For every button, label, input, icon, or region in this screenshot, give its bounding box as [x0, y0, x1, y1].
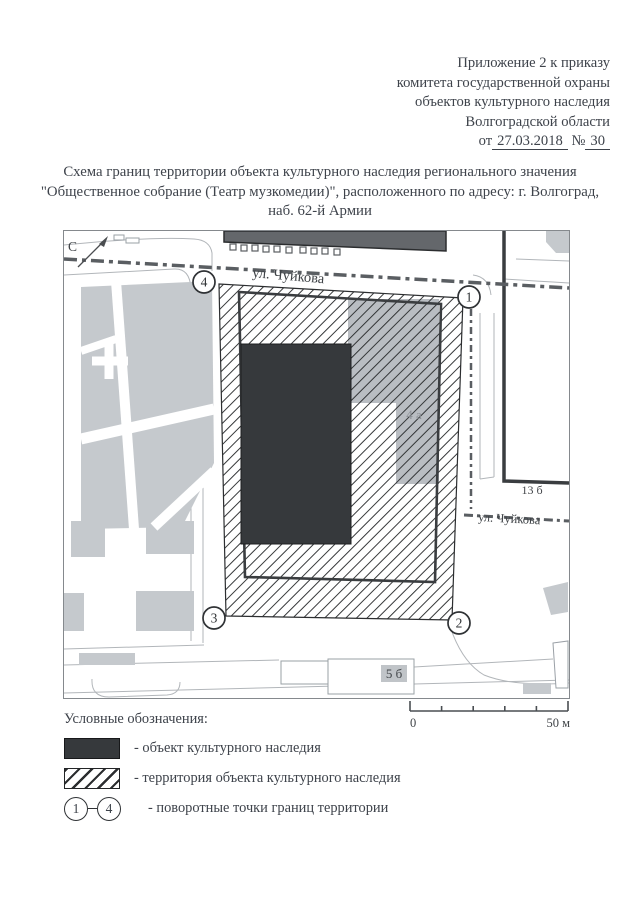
- heritage-object-building: [241, 344, 351, 544]
- street-chuikova-right-label: ул. Чуйкова: [478, 510, 541, 527]
- scale-bar-ticks: [410, 701, 568, 711]
- turn-point-2-number: 2: [456, 616, 463, 631]
- street-chuikova-top-label: ул. Чуйкова: [252, 265, 326, 287]
- turn-point-3: 3: [203, 607, 225, 629]
- turn-point-4-number: 4: [201, 275, 208, 290]
- legend-item-object: - объект культурного наследия: [64, 737, 584, 760]
- turn-points-swatch: 1 4: [64, 796, 134, 821]
- parcel-5b-label: 5 б: [386, 666, 403, 681]
- turn-point-1-number: 1: [466, 290, 473, 305]
- annex-line: объектов культурного наследия: [397, 93, 610, 113]
- order-reference: Приложение 2 к приказу комитета государс…: [397, 54, 610, 152]
- order-no-sign: №: [571, 133, 585, 149]
- boundary-scheme-map: 5 б 13 б: [63, 230, 570, 699]
- block-13b-boundary: [504, 231, 569, 483]
- map-svg: 5 б 13 б: [64, 231, 569, 698]
- legend-item-points: 1 4 - поворотные точки границ территории: [64, 797, 584, 820]
- turn-point-4: 4: [193, 271, 215, 293]
- turn-point-2: 2: [448, 612, 470, 634]
- page-title: Схема границ территории объекта культурн…: [40, 163, 600, 222]
- legend-title: Условные обозначения:: [64, 711, 584, 728]
- territory-hatch-swatch: [64, 768, 120, 789]
- legend-territory-label: - территория объекта культурного наследи…: [134, 770, 401, 787]
- order-date-line: от27.03.2018 №30: [397, 132, 610, 152]
- north-label: С: [68, 239, 77, 254]
- parcel-13b-label: 13 б: [521, 483, 542, 497]
- order-prefix: от: [479, 133, 492, 149]
- order-date: 27.03.2018: [492, 133, 568, 150]
- heritage-object-swatch: [64, 738, 120, 759]
- turn-point-1: 1: [458, 286, 480, 308]
- legend: Условные обозначения: - объект культурно…: [64, 711, 584, 827]
- legend-point-dash: [88, 808, 97, 809]
- legend-points-label: - поворотные точки границ территории: [148, 800, 388, 817]
- document-page: Приложение 2 к приказу комитета государс…: [0, 0, 640, 905]
- order-number: 30: [585, 133, 610, 150]
- legend-object-label: - объект культурного наследия: [134, 740, 321, 757]
- turn-point-3-number: 3: [211, 611, 218, 626]
- legend-item-territory: - территория объекта культурного наследи…: [64, 767, 584, 790]
- parcel-4a-label: 4 а: [406, 407, 422, 422]
- annex-line: Приложение 2 к приказу: [397, 54, 610, 74]
- legend-point-1-circle: 1: [64, 797, 88, 821]
- legend-point-4-circle: 4: [97, 797, 121, 821]
- annex-line: комитета государственной охраны: [397, 74, 610, 94]
- annex-line: Волгоградской области: [397, 113, 610, 133]
